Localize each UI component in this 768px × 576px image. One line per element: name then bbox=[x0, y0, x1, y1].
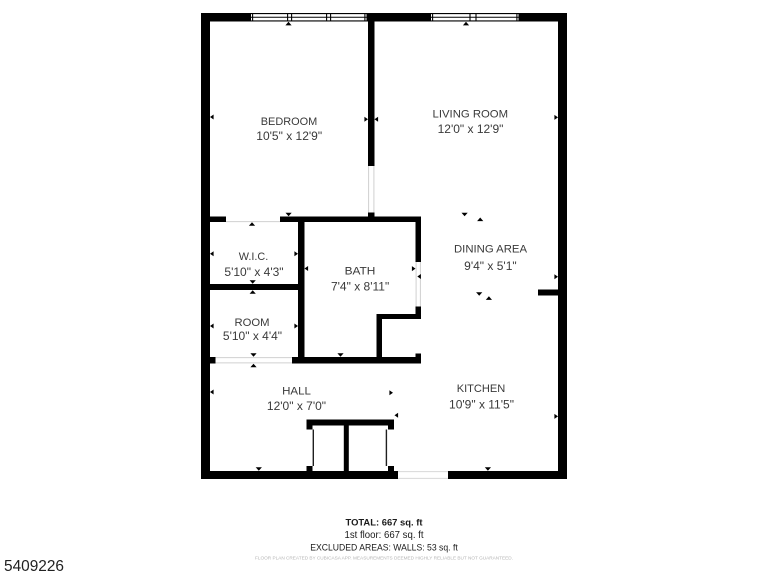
svg-text:5'10" x 4'4": 5'10" x 4'4" bbox=[223, 329, 282, 343]
svg-text:7'4" x 8'11": 7'4" x 8'11" bbox=[331, 279, 389, 293]
svg-text:HALL: HALL bbox=[282, 386, 311, 398]
svg-text:EXCLUDED AREAS: WALLS: 53 sq.: EXCLUDED AREAS: WALLS: 53 sq. ft bbox=[310, 542, 458, 553]
svg-text:DINING AREA: DINING AREA bbox=[454, 244, 527, 256]
svg-text:BATH: BATH bbox=[345, 266, 376, 278]
svg-text:ROOM: ROOM bbox=[235, 317, 270, 329]
svg-text:BEDROOM: BEDROOM bbox=[261, 116, 318, 128]
svg-text:5'10" x 4'3": 5'10" x 4'3" bbox=[224, 265, 283, 279]
svg-text:KITCHEN: KITCHEN bbox=[457, 383, 506, 395]
svg-text:5409226: 5409226 bbox=[4, 558, 64, 575]
svg-text:9'4" x 5'1": 9'4" x 5'1" bbox=[464, 259, 516, 273]
svg-text:TOTAL: 667 sq. ft: TOTAL: 667 sq. ft bbox=[346, 518, 424, 529]
svg-text:10'9" x 11'5": 10'9" x 11'5" bbox=[449, 398, 514, 412]
svg-text:1st floor: 667 sq. ft: 1st floor: 667 sq. ft bbox=[345, 530, 424, 541]
svg-text:10'5" x 12'9": 10'5" x 12'9" bbox=[256, 129, 322, 143]
svg-text:12'0" x 7'0": 12'0" x 7'0" bbox=[267, 399, 326, 413]
svg-text:FLOOR PLAN CREATED BY CUBICASA: FLOOR PLAN CREATED BY CUBICASA APP. MEAS… bbox=[255, 556, 513, 561]
svg-text:W.I.C.: W.I.C. bbox=[239, 251, 269, 263]
svg-text:12'0" x 12'9": 12'0" x 12'9" bbox=[438, 122, 504, 136]
svg-text:LIVING ROOM: LIVING ROOM bbox=[433, 109, 509, 121]
